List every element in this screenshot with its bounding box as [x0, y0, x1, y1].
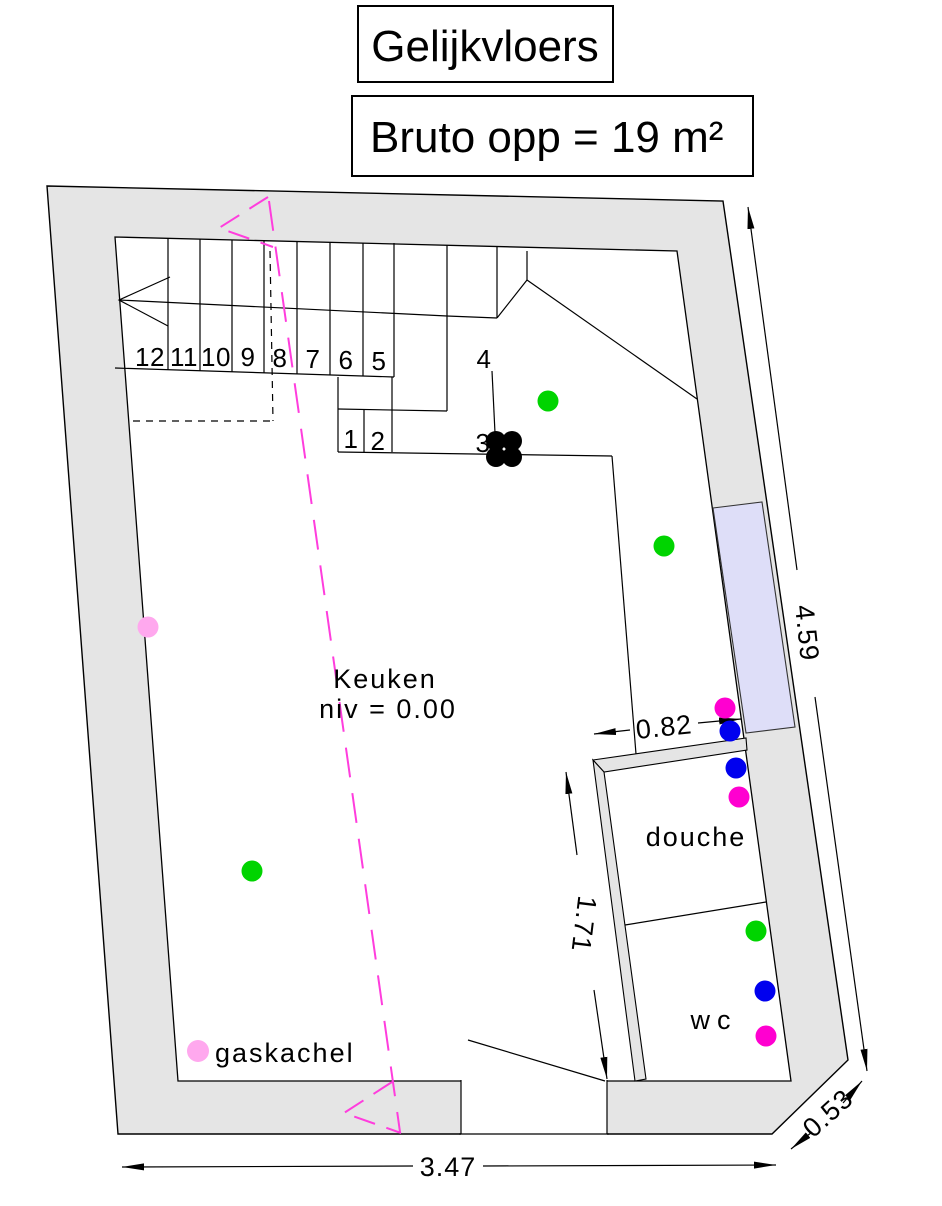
dot-magenta-window-top	[715, 698, 736, 719]
dot-black	[502, 447, 522, 467]
floor-plan-page: 12 11 10 9 8 7 6 5 4 3 2 1 4.59 0.82 1.7…	[0, 0, 942, 1206]
keuken-level-label: niv = 0.00	[319, 694, 457, 724]
dot-pink-wall	[138, 617, 159, 638]
dot-pink-gaskachel	[187, 1040, 209, 1062]
title-block: Gelijkvloers Bruto opp = 19 m²	[352, 6, 753, 176]
dot-magenta-wc	[756, 1026, 777, 1047]
dot-blue-wc	[755, 981, 776, 1002]
keuken-label: Keuken	[333, 664, 437, 694]
dot-blue-douche	[726, 758, 747, 779]
dim-bottom-width: 3.47	[420, 1152, 477, 1182]
tread-number: 12	[135, 342, 165, 372]
tread-number: 7	[306, 344, 321, 374]
tread-number: 11	[170, 342, 198, 372]
wc-label: wc	[690, 1005, 738, 1035]
dim-right-height: 4.59	[789, 603, 825, 662]
dot-green-stairs	[538, 391, 559, 412]
dim-douche-width: 0.82	[634, 709, 693, 745]
tread-number: 1	[344, 424, 359, 454]
dot-green-wc	[746, 921, 767, 942]
tread-number: 9	[241, 342, 256, 372]
tread-number: 4	[477, 344, 492, 374]
gross-area-label: Bruto opp = 19 m²	[370, 113, 723, 162]
tread-number: 2	[371, 426, 386, 456]
dim-line	[122, 1166, 413, 1167]
tread-number: 8	[273, 343, 288, 373]
tread-number: 5	[372, 346, 387, 376]
dot-blue-window	[720, 721, 741, 742]
tread-number: 10	[201, 342, 231, 372]
douche-label: douche	[646, 822, 747, 852]
gaskachel-label: gaskachel	[215, 1038, 355, 1068]
floor-plan-drawing: 12 11 10 9 8 7 6 5 4 3 2 1 4.59 0.82 1.7…	[0, 0, 942, 1206]
dot-green-keuken	[242, 861, 263, 882]
dot-green-hall	[654, 536, 675, 557]
page-title: Gelijkvloers	[371, 22, 598, 71]
dot-magenta-douche	[729, 787, 750, 808]
door-opening	[461, 1079, 607, 1135]
tread-number: 6	[339, 345, 354, 375]
dim-line	[483, 1165, 776, 1166]
